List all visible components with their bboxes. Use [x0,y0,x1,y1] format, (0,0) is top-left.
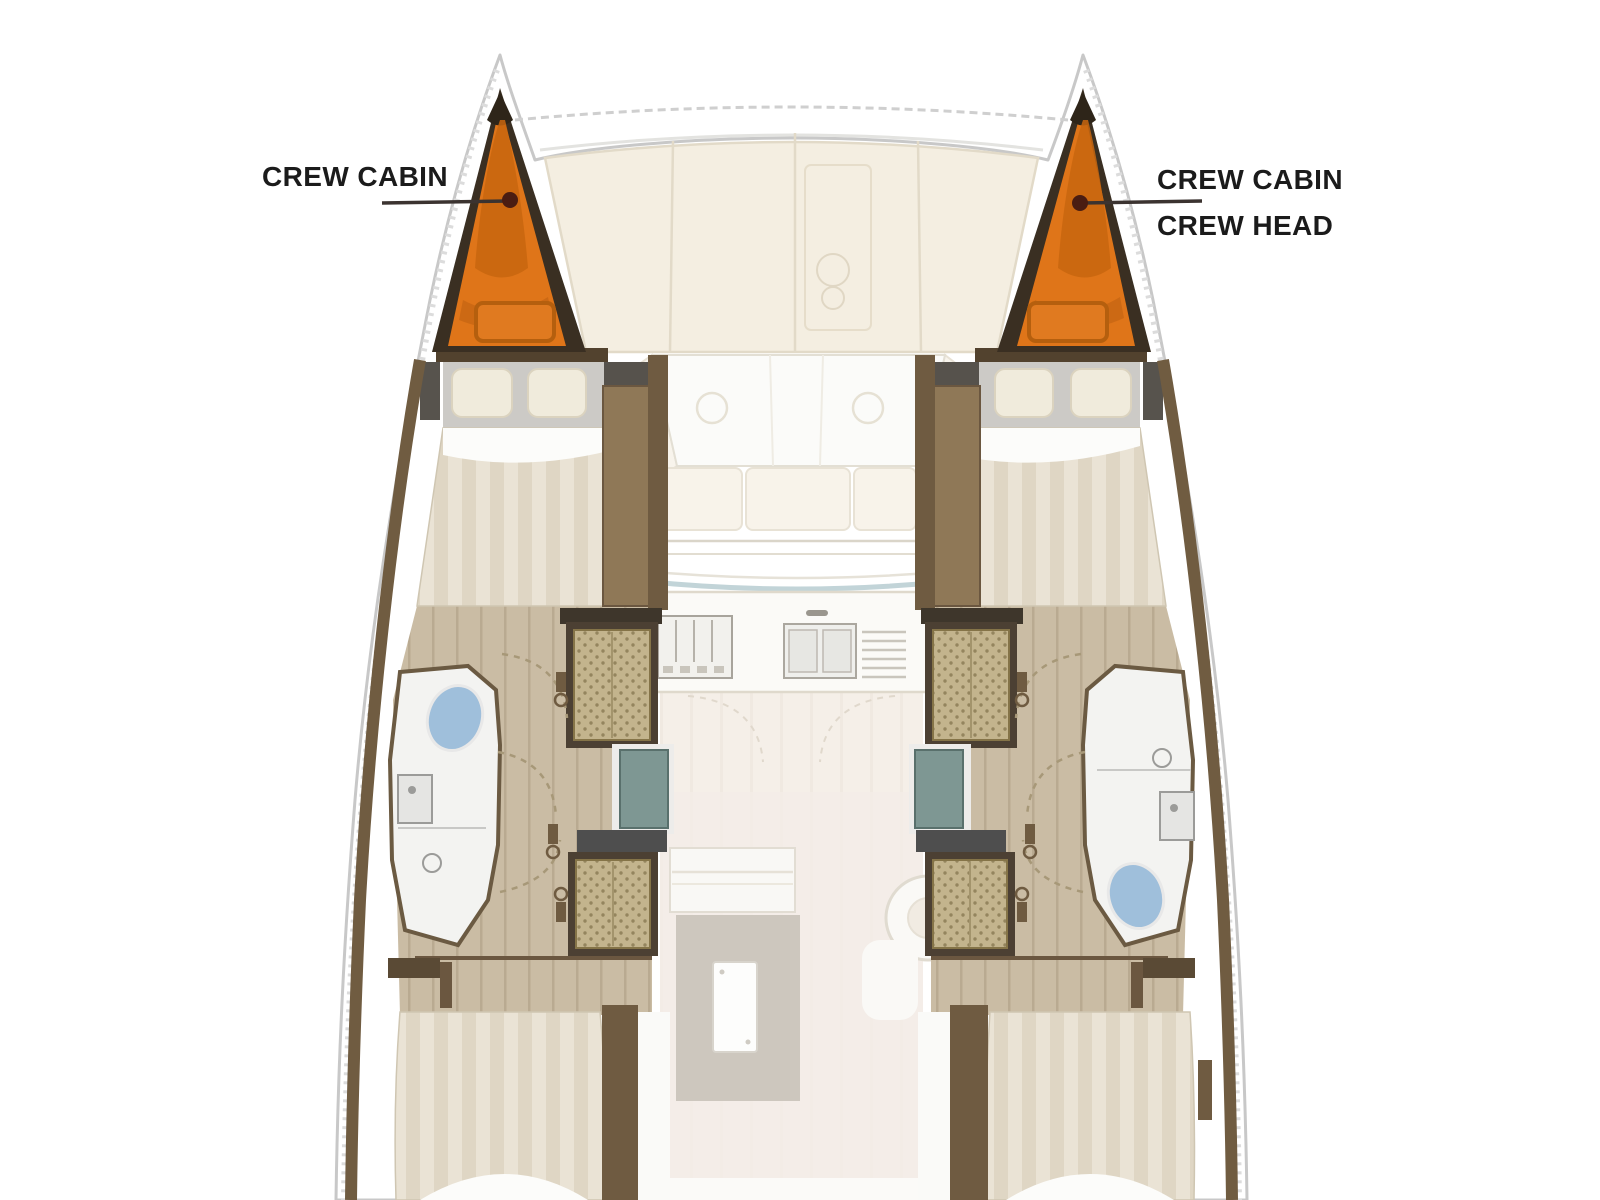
frame-piece [388,958,440,978]
frame-piece [1131,962,1143,1008]
port-wardrobe-upper [566,622,658,748]
starboard-wardrobe-upper [925,622,1017,748]
frame-piece [1198,1060,1212,1120]
port-hull-interior [351,348,674,1200]
starboard-wardrobe-wall [933,386,980,606]
port-shower-glass [612,744,674,834]
label-crew-cabin-port: CREW CABIN [258,162,448,192]
starboard-shower-glass [909,744,971,834]
floor-plan-canvas: CREW CABIN CREW CABIN CREW HEAD [0,0,1600,1200]
sofa-cushion [854,468,916,530]
cockpit-step [660,1178,923,1200]
starboard-step-band [916,830,1006,852]
port-head [390,666,500,945]
starboard-aft-bed [986,1012,1195,1200]
bow-step [1029,303,1107,341]
pillow [1071,369,1131,417]
frame-piece [1143,958,1195,978]
starboard-wardrobe-lower [925,852,1015,956]
dinette-bench [670,848,795,912]
label-crew-head-starboard: CREW HEAD [1157,211,1333,241]
starboard-aft-wall [950,1005,988,1200]
label-crew-cabin-starboard: CREW CABIN [1157,165,1343,195]
trampoline-line [515,107,1068,120]
bow-step [476,303,554,341]
corner-locker [935,362,979,386]
pillow [528,369,586,417]
port-wardrobe-wall [603,386,650,606]
pillow [995,369,1053,417]
leader-dot [502,192,518,208]
starboard-inner-wall [915,355,935,610]
sofa-cushion [746,468,850,530]
port-step-band [577,830,667,852]
sink-icon [398,775,432,823]
leader-dot [1072,195,1088,211]
cabinet-top-band [560,608,662,624]
starboard-hull-interior [909,348,1232,1200]
cabinet-top-band [921,608,1023,624]
port-aft-bed [395,1012,606,1200]
port-inner-wall [648,355,668,610]
boat-floor-plan [0,0,1600,1200]
corner-locker [604,362,648,386]
dinette-table [713,962,757,1052]
port-wardrobe-lower [568,852,658,956]
frame-piece [440,962,452,1008]
starboard-head [1083,666,1194,945]
foredeck-lounge [545,133,1038,352]
sink-icon [1160,792,1194,840]
port-aft-wall [602,1005,638,1200]
sofa-cushion [660,468,742,530]
pillow [452,369,512,417]
stove-icon [658,616,732,678]
